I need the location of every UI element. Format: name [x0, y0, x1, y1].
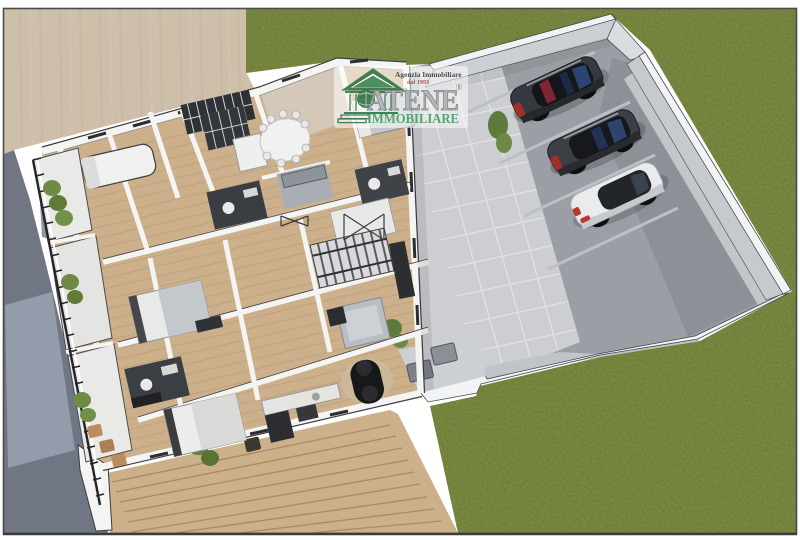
svg-text:Agenzia Immobiliare: Agenzia Immobiliare — [395, 70, 462, 79]
svg-text:IMMOBILIARE: IMMOBILIARE — [367, 111, 459, 126]
svg-text:®: ® — [456, 83, 462, 92]
svg-text:dal 1993: dal 1993 — [407, 79, 429, 86]
